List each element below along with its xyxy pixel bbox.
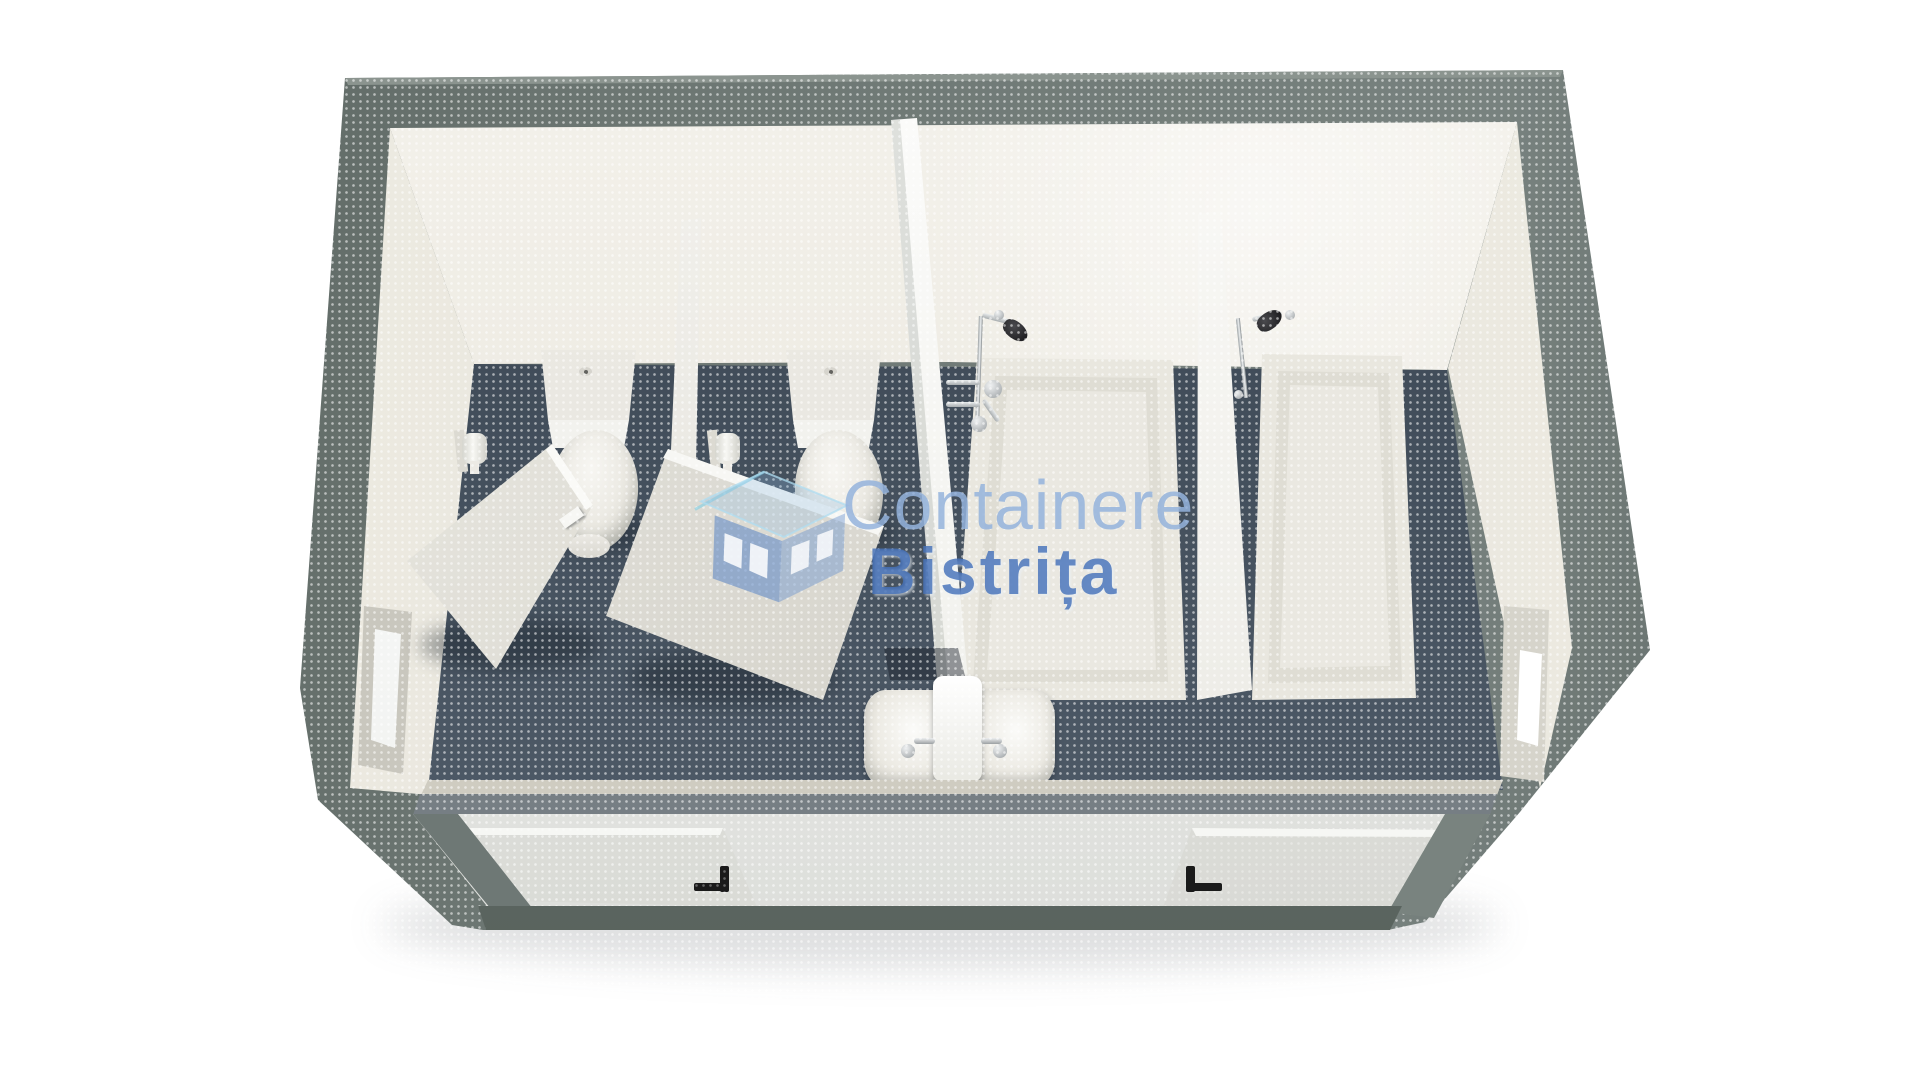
watermark-brand-line2: Bistrița <box>868 538 1119 604</box>
container-3d-render: Containere Bistrița <box>0 0 1920 1080</box>
house-icon <box>694 462 854 620</box>
watermark-brand-line1: Containere <box>842 470 1194 540</box>
entrance-door-right-handle-bar <box>1186 883 1222 891</box>
